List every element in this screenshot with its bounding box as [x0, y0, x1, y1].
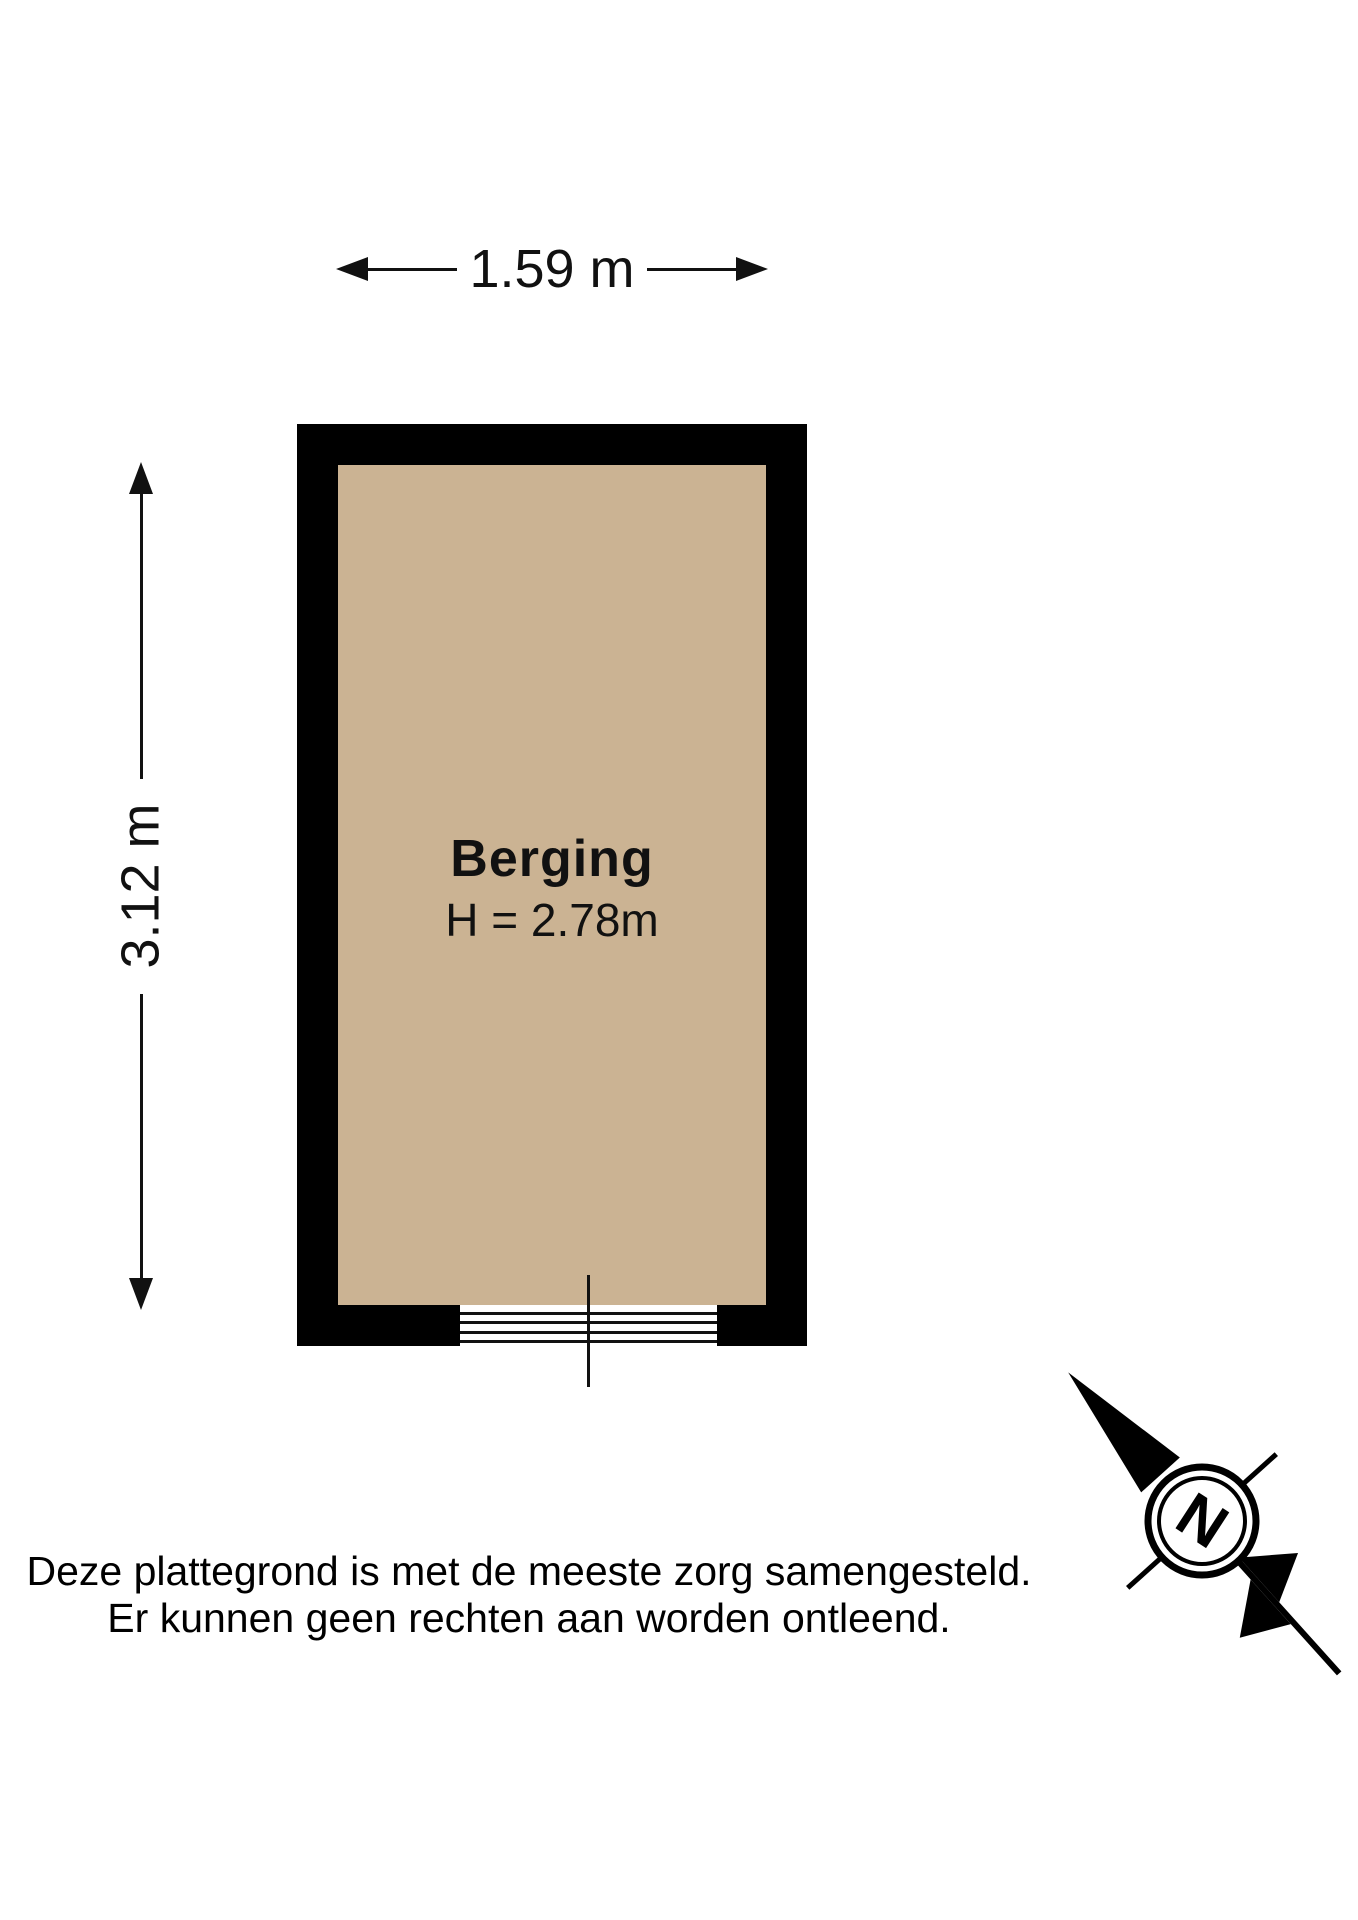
disclaimer-line-1: Deze plattegrond is met de meeste zorg s… [0, 1548, 1058, 1595]
compass-needle [1049, 1355, 1180, 1492]
room-walls: Berging H = 2.78m [297, 424, 807, 1346]
arrow-down-icon [129, 1278, 153, 1310]
door-center-line [587, 1275, 590, 1387]
arrow-right-icon [736, 257, 768, 281]
arrow-up-icon [129, 462, 153, 494]
width-dimension: 1.59 m [336, 243, 768, 295]
floorplan-canvas: 1.59 m 3.12 m Berging H = 2.78m [0, 0, 1358, 1920]
room-name: Berging [338, 830, 766, 888]
compass-north-icon: N [1032, 1346, 1352, 1696]
disclaimer: Deze plattegrond is met de meeste zorg s… [0, 1548, 1058, 1642]
arrow-left-icon [336, 257, 368, 281]
depth-dimension-label: 3.12 m [114, 803, 168, 968]
depth-dimension-label-wrap: 3.12 m [117, 779, 165, 994]
width-dimension-label: 1.59 m [457, 242, 646, 296]
dimension-line-bottom [140, 994, 143, 1279]
room-label-group: Berging H = 2.78m [338, 830, 766, 946]
disclaimer-line-2: Er kunnen geen rechten aan worden ontlee… [0, 1595, 1058, 1642]
room-floor: Berging H = 2.78m [338, 465, 766, 1305]
dimension-line-top [140, 494, 143, 779]
dimension-line-left [368, 268, 457, 271]
depth-dimension: 3.12 m [117, 462, 165, 1310]
dimension-line-right [647, 268, 736, 271]
room-ceiling-height: H = 2.78m [338, 894, 766, 946]
